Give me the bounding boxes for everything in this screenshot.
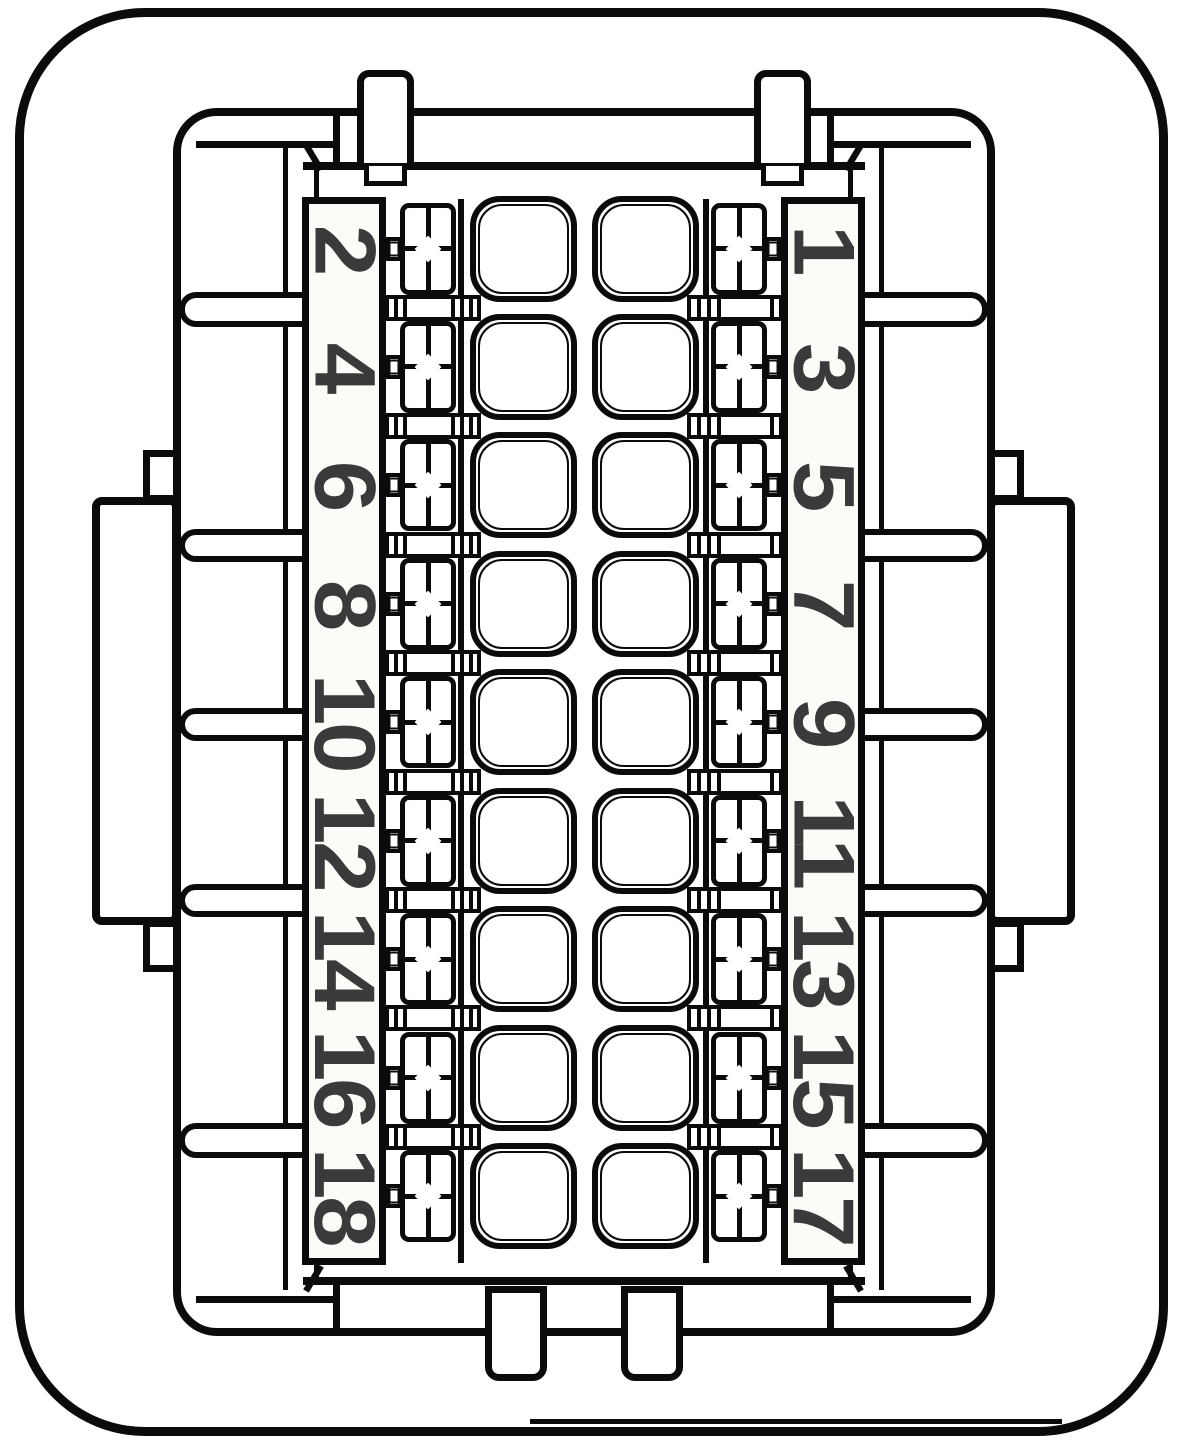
pin-label-cell: 18 [309,1137,379,1255]
pin-labels-layer: 214365871091211141316151817 [0,0,1182,1444]
bottom-seam-line [530,1419,1062,1424]
pin-label: 9 [780,698,866,746]
pin-label: 1 [780,224,866,272]
pin-label: 2 [301,224,387,272]
connector-diagram: 214365871091211141316151817 [0,0,1182,1444]
pin-label: 11 [780,795,866,887]
pin-label: 6 [301,461,387,509]
pin-label: 16 [301,1029,387,1126]
pin-label-cell: 5 [788,426,858,544]
pin-label: 10 [301,674,387,771]
pin-label: 18 [301,1148,387,1245]
pin-label: 3 [780,343,866,391]
pin-label-cell: 11 [788,782,858,900]
pin-label-cell: 9 [788,663,858,781]
pin-label: 15 [780,1029,866,1126]
pin-label-cell: 14 [309,900,379,1018]
pin-label-cell: 8 [309,545,379,663]
pin-label: 17 [780,1148,866,1245]
pin-label: 12 [301,792,387,889]
pin-label: 7 [780,580,866,628]
pin-label-cell: 13 [788,900,858,1018]
pin-label-cell: 10 [309,663,379,781]
pin-label-cell: 15 [788,1019,858,1137]
pin-label: 5 [780,461,866,509]
pin-label-cell: 6 [309,426,379,544]
pin-label-cell: 4 [309,308,379,426]
pin-label: 4 [301,343,387,391]
pin-label-cell: 12 [309,782,379,900]
pin-label-cell: 1 [788,190,858,308]
pin-label-cell: 16 [309,1019,379,1137]
pin-label: 14 [301,911,387,1008]
pin-label: 8 [301,580,387,628]
pin-label: 13 [780,911,866,1008]
pin-label-cell: 3 [788,308,858,426]
pin-label-cell: 7 [788,545,858,663]
pin-label-cell: 2 [309,190,379,308]
pin-label-cell: 17 [788,1137,858,1255]
